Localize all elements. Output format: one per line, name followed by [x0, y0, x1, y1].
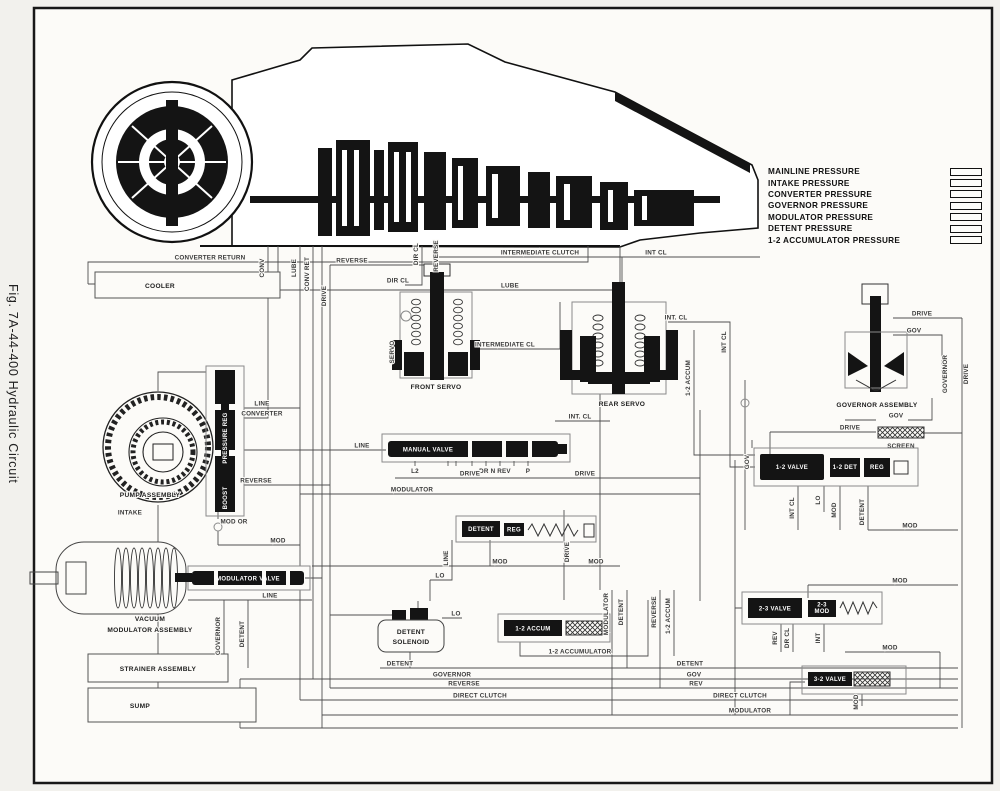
svg-text:DETENT: DETENT — [677, 661, 703, 668]
legend-label: 1-2 ACCUMULATOR PRESSURE — [768, 236, 900, 245]
svg-text:DRIVE: DRIVE — [912, 311, 932, 318]
svg-text:GOV: GOV — [687, 672, 702, 679]
svg-text:DRIVE: DRIVE — [840, 425, 860, 432]
svg-text:LO: LO — [451, 611, 460, 618]
svg-text:DRIVE: DRIVE — [564, 542, 571, 562]
svg-text:INT. CL: INT. CL — [569, 414, 592, 421]
svg-text:DRIVE: DRIVE — [575, 471, 595, 478]
svg-text:LINE: LINE — [262, 593, 277, 600]
legend-row: INTAKE PRESSURE — [768, 177, 982, 188]
legend-label: CONVERTER PRESSURE — [768, 190, 872, 199]
svg-text:MODULATOR: MODULATOR — [603, 593, 610, 635]
strainer-label: STRAINER ASSEMBLY — [120, 666, 197, 673]
pressure-legend: MAINLINE PRESSURE INTAKE PRESSURE CONVER… — [768, 166, 982, 246]
svg-text:LO: LO — [815, 495, 822, 504]
legend-swatch-governor — [950, 202, 982, 210]
legend-row: MAINLINE PRESSURE — [768, 166, 982, 177]
front-servo-label: FRONT SERVO — [411, 384, 462, 391]
detent-reg-label: REG — [507, 528, 521, 534]
pump-label: PUMP ASSEMBLY — [120, 492, 181, 499]
sump: SUMP — [88, 688, 256, 722]
accum-12-label: 1-2 ACCUM — [515, 627, 550, 633]
strainer-assembly: STRAINER ASSEMBLY — [88, 654, 228, 682]
legend-row: 1-2 ACCUMULATOR PRESSURE — [768, 234, 982, 245]
svg-text:INTAKE: INTAKE — [118, 510, 142, 517]
pump-assembly: PUMP ASSEMBLY — [103, 392, 213, 502]
manual-valve-label: MANUAL VALVE — [403, 448, 453, 454]
sump-label: SUMP — [130, 703, 151, 710]
svg-text:INT CL: INT CL — [645, 250, 667, 257]
svg-text:LINE: LINE — [354, 443, 369, 450]
manual-position-p: P — [526, 468, 530, 475]
svg-text:LUBE: LUBE — [291, 259, 298, 277]
svg-text:DETENT: DETENT — [618, 599, 625, 625]
svg-text:MOD: MOD — [270, 538, 286, 545]
svg-text:1-2 ACCUM: 1-2 ACCUM — [685, 360, 692, 396]
svg-text:CONVERTER: CONVERTER — [241, 411, 283, 418]
valve-32-label: 3-2 VALVE — [814, 677, 846, 683]
svg-text:CONV RET: CONV RET — [304, 257, 311, 291]
detent-solenoid-label-1: DETENT — [397, 629, 425, 636]
svg-text:GOVERNOR: GOVERNOR — [215, 617, 222, 656]
svg-text:GOVERNOR: GOVERNOR — [433, 672, 472, 679]
legend-row: DETENT PRESSURE — [768, 223, 982, 234]
governor-label: GOVERNOR ASSEMBLY — [836, 402, 917, 409]
legend-label: DETENT PRESSURE — [768, 224, 853, 233]
svg-text:REVERSE: REVERSE — [651, 596, 658, 628]
svg-text:GOV: GOV — [889, 413, 904, 420]
legend-label: MODULATOR PRESSURE — [768, 213, 873, 222]
svg-text:GOV: GOV — [907, 328, 922, 335]
svg-text:INT CL: INT CL — [789, 497, 796, 519]
mod-23-label-2: MOD — [815, 609, 830, 615]
svg-text:DETENT: DETENT — [859, 499, 866, 525]
svg-text:REV: REV — [689, 681, 703, 688]
detent-solenoid-label-2: SOLENOID — [393, 639, 430, 646]
legend-swatch-modulator — [950, 213, 982, 221]
svg-text:DIR CL: DIR CL — [387, 278, 409, 285]
svg-text:CONV: CONV — [259, 258, 266, 278]
svg-text:1-2 ACCUM: 1-2 ACCUM — [665, 598, 672, 634]
legend-swatch-converter — [950, 190, 982, 198]
svg-text:INTERMEDIATE CL: INTERMEDIATE CL — [475, 342, 535, 349]
screen-label: SCREEN — [887, 443, 915, 450]
legend-swatch-detent — [950, 225, 982, 233]
reg-12-label: REG — [870, 465, 884, 471]
svg-text:MOD: MOD — [831, 502, 838, 518]
svg-text:MODULATOR: MODULATOR — [729, 708, 771, 715]
svg-text:MOD: MOD — [902, 523, 918, 530]
svg-text:INT: INT — [815, 633, 822, 644]
svg-text:REVERSE: REVERSE — [240, 478, 272, 485]
svg-text:GOV: GOV — [744, 454, 751, 469]
svg-text:DRIVE: DRIVE — [321, 286, 328, 306]
manual-page: Fig. 7A-44-400 Hydraulic Circuit — [0, 0, 1000, 791]
valve-12-label: 1-2 VALVE — [776, 465, 808, 471]
svg-text:DR CL: DR CL — [784, 628, 791, 648]
svg-text:DRIVE: DRIVE — [460, 471, 480, 478]
svg-text:DETENT: DETENT — [239, 621, 246, 647]
legend-label: INTAKE PRESSURE — [768, 179, 850, 188]
svg-text:MOD: MOD — [588, 559, 604, 566]
svg-text:SERVO: SERVO — [389, 341, 396, 364]
detent-valve-label: DETENT — [468, 527, 494, 533]
svg-text:LO: LO — [435, 573, 444, 580]
manual-position-l2: L2 — [411, 468, 419, 475]
svg-text:MOD OR: MOD OR — [220, 519, 247, 526]
svg-text:REVERSE: REVERSE — [433, 240, 440, 272]
svg-text:MOD: MOD — [492, 559, 508, 566]
pressure-reg-label: PRESSURE REG — [223, 412, 229, 463]
svg-text:MODULATOR: MODULATOR — [391, 487, 433, 494]
svg-text:REV: REV — [772, 631, 779, 645]
det-12-label: 1-2 DET — [833, 465, 857, 471]
svg-text:LUBE: LUBE — [501, 283, 519, 290]
manual-position-dr-n-rev: DR N REV — [479, 468, 511, 475]
legend-label: MAINLINE PRESSURE — [768, 167, 860, 176]
svg-text:MOD: MOD — [882, 645, 898, 652]
svg-text:1-2 ACCUMULATOR: 1-2 ACCUMULATOR — [549, 649, 612, 656]
cooler: COOLER — [95, 272, 280, 298]
svg-text:DIRECT CLUTCH: DIRECT CLUTCH — [713, 693, 767, 700]
vacuum-modulator-label-2: MODULATOR ASSEMBLY — [107, 627, 193, 634]
svg-text:REVERSE: REVERSE — [448, 681, 480, 688]
svg-text:INT CL: INT CL — [721, 331, 728, 353]
legend-swatch-mainline — [950, 168, 982, 176]
svg-text:LINE: LINE — [254, 401, 269, 408]
modulator-valve-label: MODULATOR VALVE — [216, 577, 280, 583]
hydraulic-circuit-diagram: COOLER PUMP ASSEMBLY PRESSURE REG BOOST — [0, 0, 1000, 791]
svg-text:DIRECT CLUTCH: DIRECT CLUTCH — [453, 693, 507, 700]
svg-text:GOVERNOR: GOVERNOR — [942, 355, 949, 394]
svg-text:DIR CL: DIR CL — [413, 243, 420, 265]
legend-row: GOVERNOR PRESSURE — [768, 200, 982, 211]
svg-text:LINE: LINE — [443, 550, 450, 565]
svg-text:DRIVE: DRIVE — [963, 364, 970, 384]
valve-23-label: 2-3 VALVE — [759, 607, 791, 613]
svg-text:CONVERTER RETURN: CONVERTER RETURN — [175, 255, 246, 262]
mod-23-label-1: 2-3 — [817, 603, 827, 609]
svg-text:INT. CL: INT. CL — [665, 315, 688, 322]
svg-text:MOD: MOD — [892, 578, 908, 585]
boost-label: BOOST — [223, 487, 229, 510]
svg-text:MOD: MOD — [853, 694, 860, 710]
cooler-label: COOLER — [145, 283, 175, 290]
legend-label: GOVERNOR PRESSURE — [768, 201, 868, 210]
svg-text:REVERSE: REVERSE — [336, 258, 368, 265]
legend-swatch-accumulator — [950, 236, 982, 244]
legend-swatch-intake — [950, 179, 982, 187]
svg-text:INTERMEDIATE CLUTCH: INTERMEDIATE CLUTCH — [501, 250, 579, 257]
svg-text:DETENT: DETENT — [387, 661, 413, 668]
legend-row: CONVERTER PRESSURE — [768, 189, 982, 200]
rear-servo-label: REAR SERVO — [599, 401, 645, 408]
vacuum-modulator-label-1: VACUUM — [135, 616, 165, 623]
legend-row: MODULATOR PRESSURE — [768, 212, 982, 223]
